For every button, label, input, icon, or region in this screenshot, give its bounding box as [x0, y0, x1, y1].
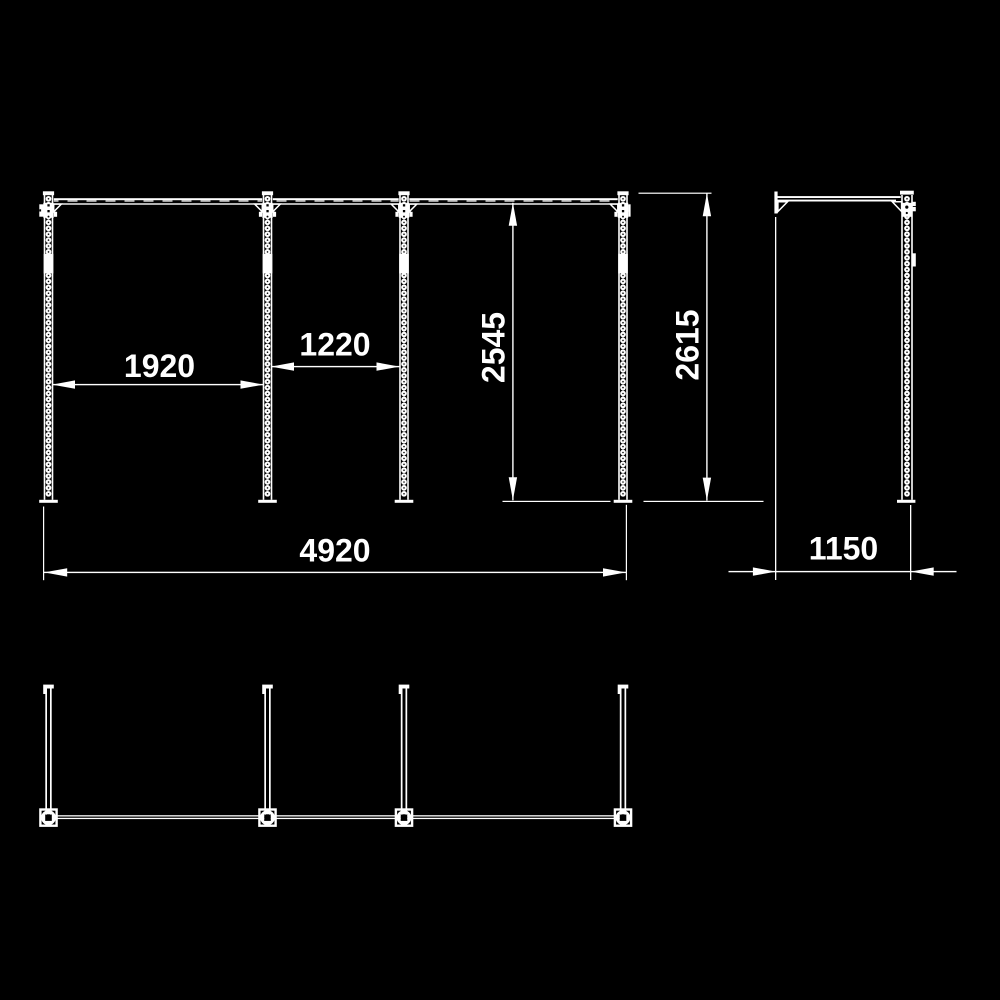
svg-text:2615: 2615 [670, 309, 706, 380]
svg-text:1920: 1920 [124, 348, 195, 384]
svg-text:2545: 2545 [476, 312, 512, 383]
svg-text:1150: 1150 [809, 531, 878, 567]
svg-text:1220: 1220 [299, 327, 370, 363]
svg-text:4920: 4920 [299, 533, 370, 569]
